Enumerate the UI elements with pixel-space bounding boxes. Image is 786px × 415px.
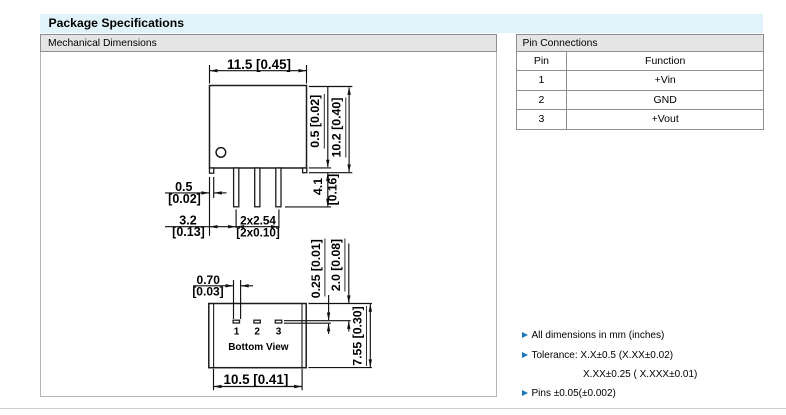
svg-text:2: 2 — [254, 327, 260, 338]
svg-text:10.5 [0.41]: 10.5 [0.41] — [224, 372, 289, 387]
svg-text:11.5 [0.45]: 11.5 [0.45] — [227, 57, 291, 72]
svg-text:10.2 [0.40]: 10.2 [0.40] — [329, 98, 343, 158]
svg-text:[2x0.10]: [2x0.10] — [236, 227, 280, 240]
svg-text:7.55 [0.30]: 7.55 [0.30] — [351, 306, 365, 365]
svg-text:2.0 [0.08]: 2.0 [0.08] — [329, 239, 343, 291]
svg-text:Bottom View: Bottom View — [228, 342, 289, 353]
svg-text:2x2.54: 2x2.54 — [240, 214, 276, 227]
svg-text:0.5 [0.02]: 0.5 [0.02] — [308, 95, 322, 148]
svg-text:4.1: 4.1 — [311, 178, 325, 195]
svg-text:1: 1 — [234, 326, 240, 337]
svg-text:[0.02]: [0.02] — [168, 192, 201, 206]
svg-text:3: 3 — [276, 327, 282, 338]
svg-text:0.25 [0.01]: 0.25 [0.01] — [309, 239, 323, 298]
svg-text:[0.13]: [0.13] — [172, 225, 205, 239]
svg-text:[0.03]: [0.03] — [192, 285, 223, 299]
svg-text:[0.16]: [0.16] — [326, 174, 340, 205]
